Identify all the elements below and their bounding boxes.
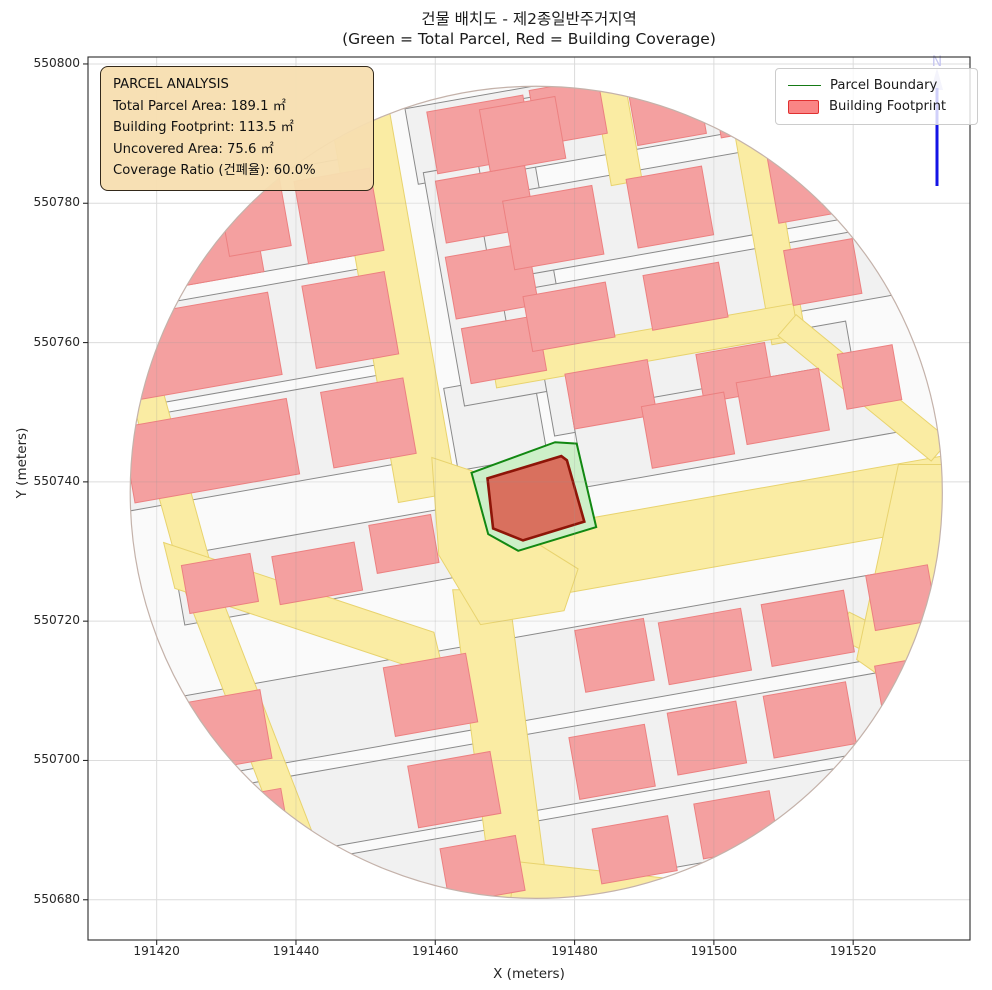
building [837, 345, 902, 410]
parcel-boundary-line-icon [788, 85, 821, 86]
y-tick-label: 550800 [8, 56, 80, 70]
building [875, 655, 946, 721]
y-tick-label: 550680 [8, 892, 80, 906]
x-tick-label: 191420 [117, 944, 197, 958]
legend-label-building-footprint: Building Footprint [829, 99, 946, 114]
building [282, 863, 367, 931]
x-tick-label: 191520 [813, 944, 893, 958]
building [837, 143, 903, 214]
legend-item-parcel-boundary: Parcel Boundary [788, 75, 977, 96]
building [627, 72, 707, 146]
building [667, 701, 746, 775]
x-tick-label: 191500 [674, 944, 754, 958]
building [626, 166, 714, 248]
y-tick-label: 550720 [8, 613, 80, 627]
legend: Parcel Boundary Building Footprint [775, 68, 978, 125]
y-tick-label: 550700 [8, 752, 80, 766]
building [575, 618, 655, 692]
legend-label-parcel-boundary: Parcel Boundary [830, 78, 937, 93]
building [503, 186, 604, 270]
y-tick-label: 550760 [8, 335, 80, 349]
x-tick-label: 191480 [535, 944, 615, 958]
building [479, 97, 565, 172]
info-total-area: Total Parcel Area: 189.1 ㎡ [113, 96, 361, 118]
y-tick-label: 550780 [8, 195, 80, 209]
parcel-analysis-box: PARCEL ANALYSIS Total Parcel Area: 189.1… [100, 66, 374, 191]
x-tick-label: 191460 [395, 944, 475, 958]
building [767, 143, 848, 224]
x-tick-label: 191440 [256, 944, 336, 958]
building-footprint-patch-icon [788, 100, 819, 114]
y-tick-label: 550740 [8, 474, 80, 488]
y-axis-label: Y (meters) [14, 413, 30, 513]
building [569, 724, 655, 799]
building [205, 788, 291, 863]
info-title: PARCEL ANALYSIS [113, 74, 361, 96]
info-coverage-ratio: Coverage Ratio (건폐율): 60.0% [113, 160, 361, 182]
building [321, 378, 417, 468]
building [383, 653, 477, 736]
info-building-footprint: Building Footprint: 113.5 ㎡ [113, 117, 361, 139]
building [784, 239, 862, 306]
building [866, 565, 937, 631]
building [302, 272, 399, 369]
info-uncovered-area: Uncovered Area: 75.6 ㎡ [113, 139, 361, 161]
building [369, 515, 439, 574]
figure: 건물 배치도 - 제2종일반주거지역 (Green = Total Parcel… [0, 0, 992, 990]
legend-item-building-footprint: Building Footprint [788, 96, 977, 117]
x-axis-label: X (meters) [88, 966, 970, 982]
